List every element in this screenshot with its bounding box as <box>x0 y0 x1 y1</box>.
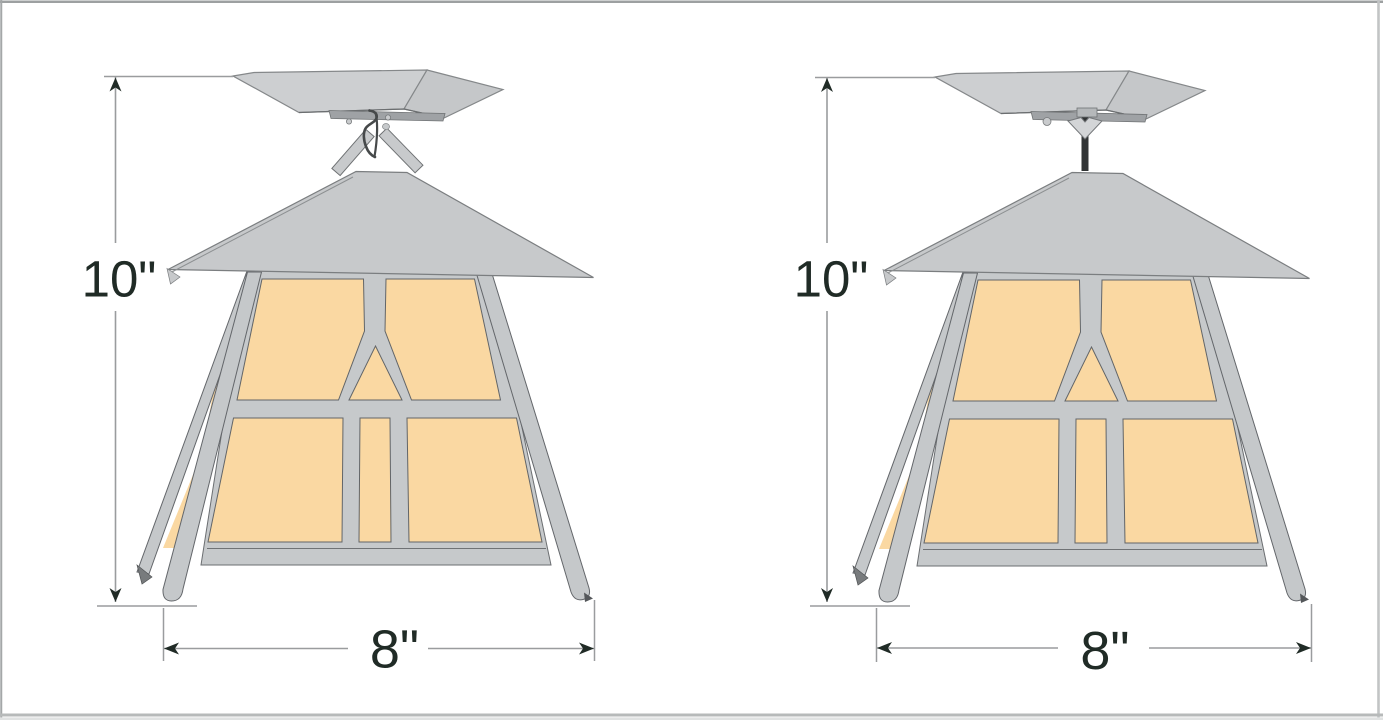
svg-text:8": 8" <box>1080 621 1129 681</box>
svg-text:8": 8" <box>370 620 419 680</box>
svg-text:10": 10" <box>794 251 869 308</box>
svg-text:10": 10" <box>82 251 157 308</box>
